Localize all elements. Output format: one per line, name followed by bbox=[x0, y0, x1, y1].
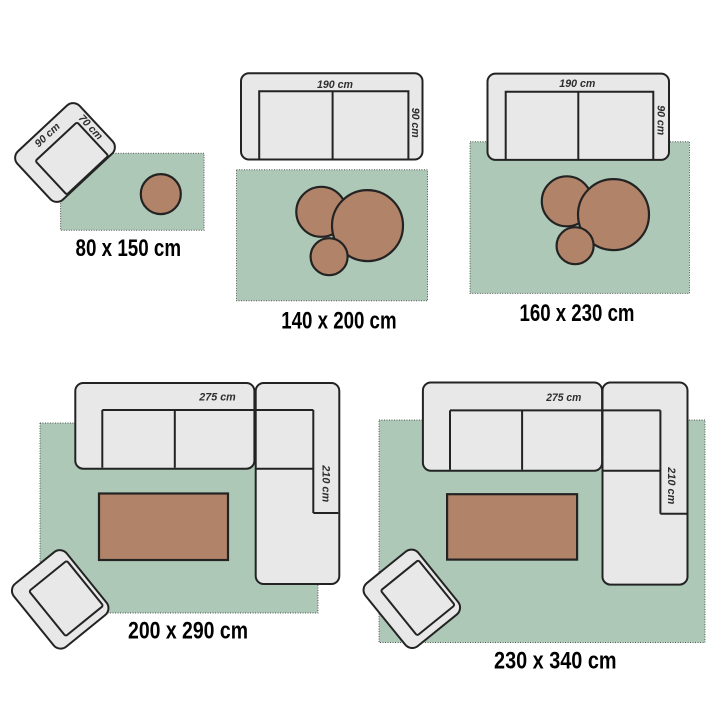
svg-text:230 x 340 cm: 230 x 340 cm bbox=[494, 648, 617, 675]
svg-text:200 x 290 cm: 200 x 290 cm bbox=[128, 618, 248, 645]
svg-text:275 cm: 275 cm bbox=[198, 392, 236, 404]
svg-text:210 cm: 210 cm bbox=[665, 466, 677, 504]
svg-text:140 x 200 cm: 140 x 200 cm bbox=[281, 308, 396, 335]
svg-text:80 x 150 cm: 80 x 150 cm bbox=[76, 235, 182, 262]
svg-text:90 cm: 90 cm bbox=[654, 105, 666, 135]
svg-text:210 cm: 210 cm bbox=[320, 464, 332, 502]
svg-text:275 cm: 275 cm bbox=[545, 392, 581, 404]
svg-text:90 cm: 90 cm bbox=[409, 108, 421, 138]
svg-text:160 x 230 cm: 160 x 230 cm bbox=[520, 300, 635, 327]
svg-text:190 cm: 190 cm bbox=[559, 78, 595, 90]
svg-text:190 cm: 190 cm bbox=[317, 79, 353, 91]
